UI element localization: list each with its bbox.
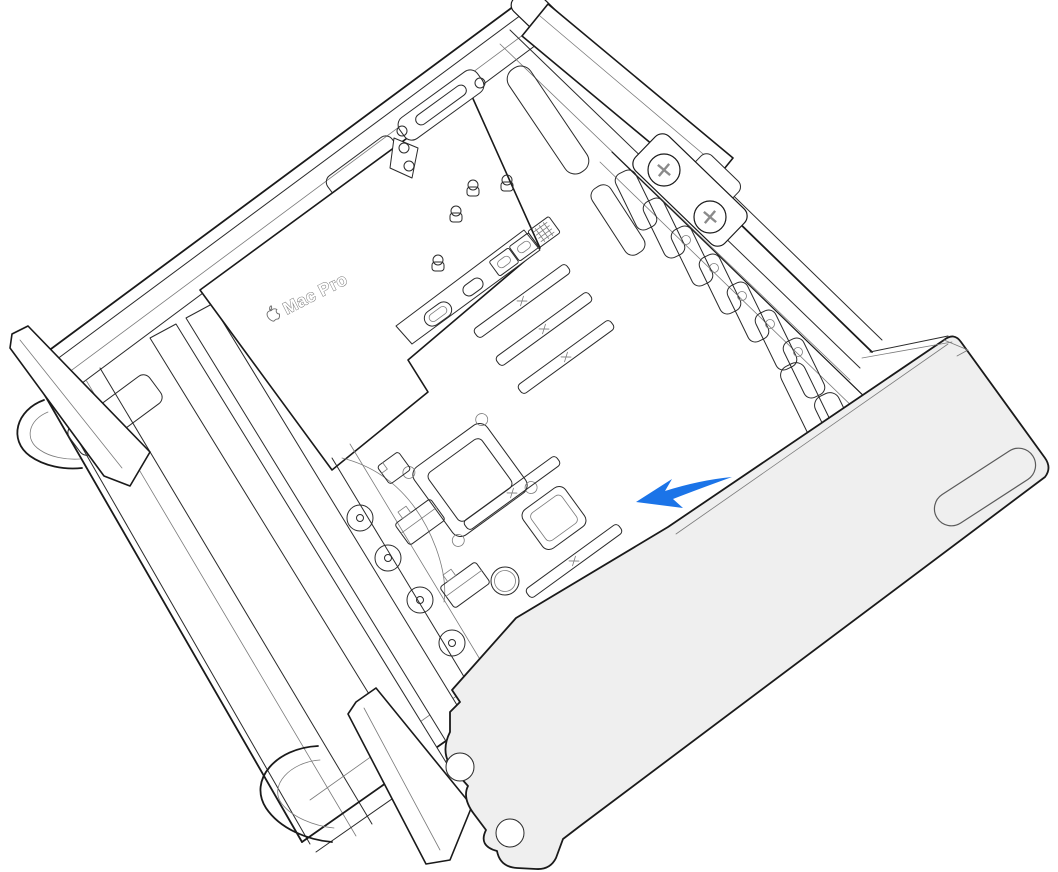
illustration-canvas: Mac Pro [0,0,1058,872]
mac-pro-panel-install-illustration: Mac Pro [0,0,1058,872]
phillips-screw [648,154,680,186]
phillips-screw [694,201,726,233]
